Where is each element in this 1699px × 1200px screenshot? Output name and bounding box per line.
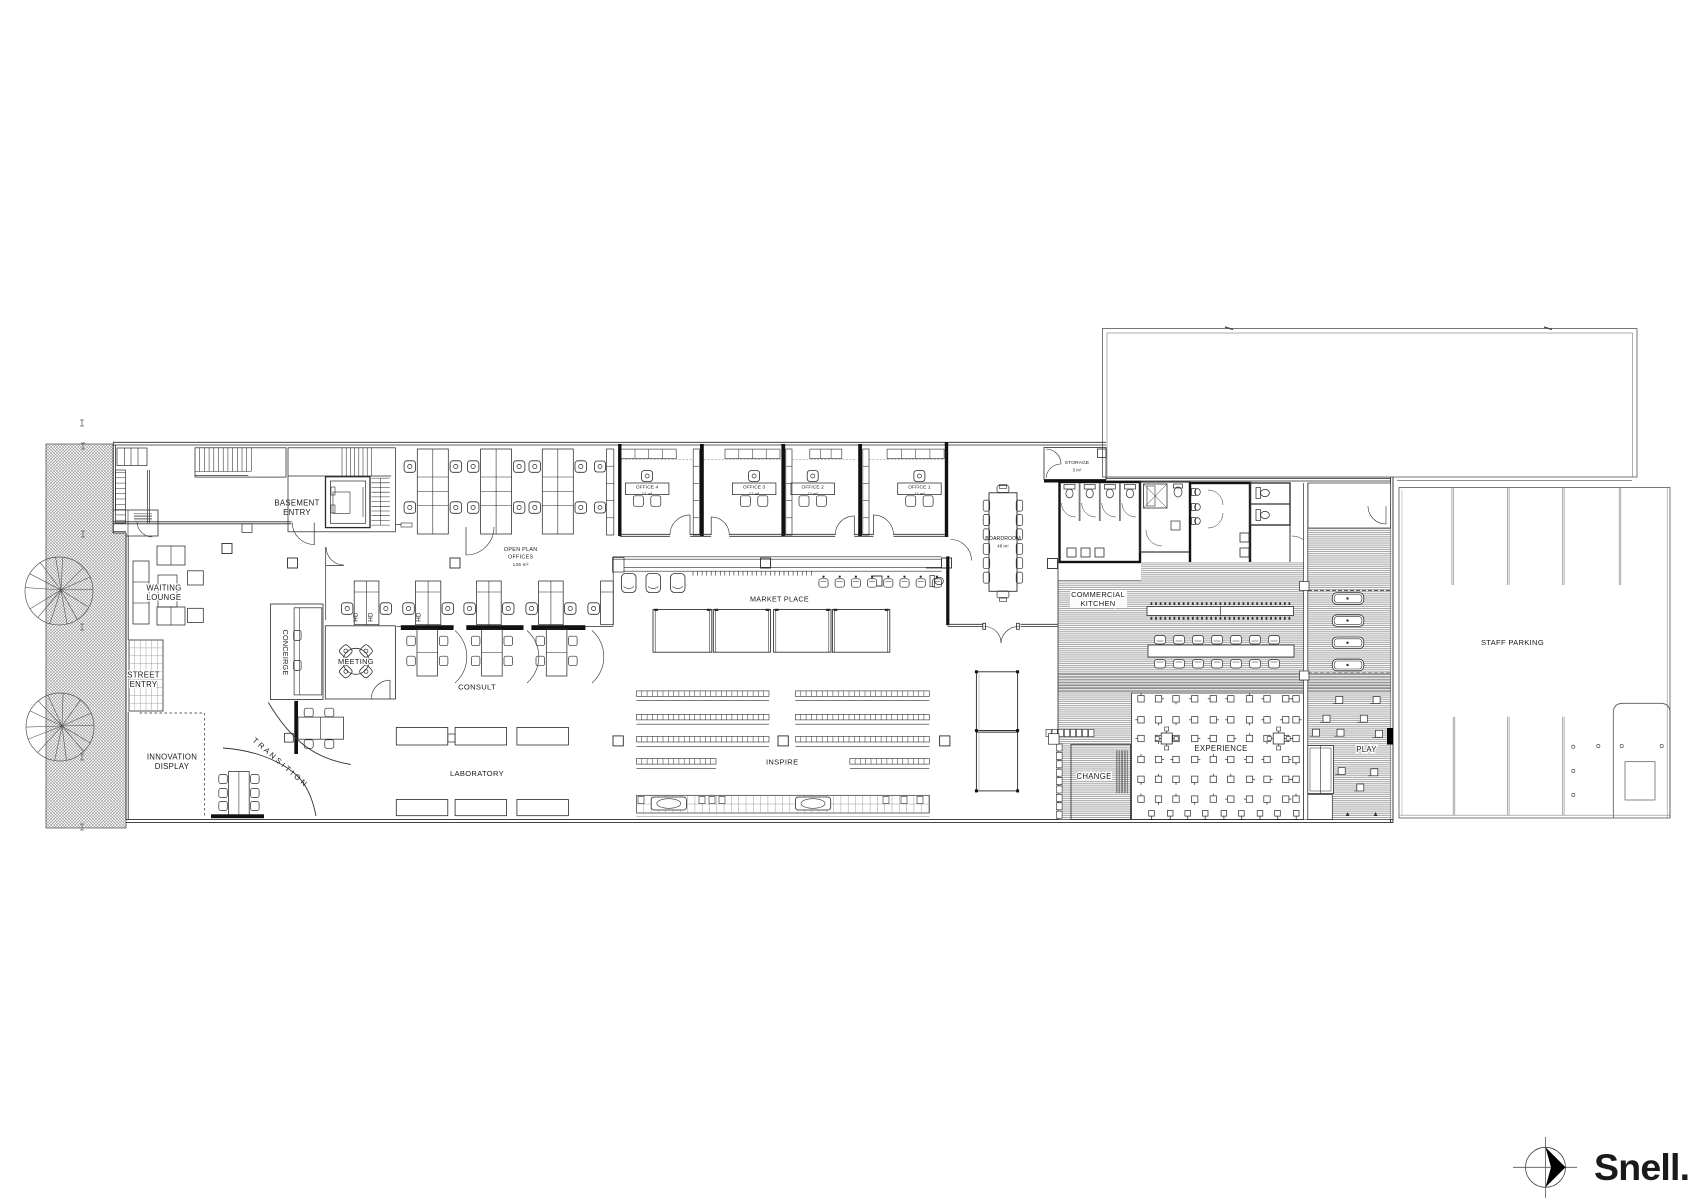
svg-text:DISPLAY: DISPLAY — [155, 762, 190, 771]
svg-text:BOARDROOM: BOARDROOM — [985, 536, 1021, 542]
svg-text:MEETING: MEETING — [338, 657, 374, 666]
svg-text:LOUNGE: LOUNGE — [147, 593, 182, 602]
svg-text:STORAGE: STORAGE — [1065, 460, 1090, 466]
svg-text:HD: HD — [416, 612, 423, 622]
svg-text:INNOVATION: INNOVATION — [147, 753, 197, 762]
svg-text:BASEMENT: BASEMENT — [274, 499, 319, 508]
svg-text:48 m²: 48 m² — [997, 544, 1009, 549]
svg-text:HD: HD — [368, 612, 375, 622]
svg-text:Snell.: Snell. — [1594, 1146, 1689, 1188]
svg-text:HD: HD — [353, 612, 360, 622]
svg-text:17 m²: 17 m² — [807, 491, 818, 496]
svg-text:STAFF PARKING: STAFF PARKING — [1481, 638, 1544, 647]
svg-text:OFFICE 4: OFFICE 4 — [636, 485, 659, 491]
svg-text:ENTRY: ENTRY — [283, 508, 311, 517]
svg-text:135 m²: 135 m² — [513, 562, 529, 567]
svg-text:KITCHEN: KITCHEN — [1080, 599, 1115, 608]
svg-text:OFFICES: OFFICES — [508, 555, 534, 561]
svg-text:ENTRY: ENTRY — [130, 680, 158, 689]
svg-text:WAITING: WAITING — [146, 584, 181, 593]
svg-text:OFFICE 3: OFFICE 3 — [743, 485, 766, 491]
svg-text:LABORATORY: LABORATORY — [450, 769, 504, 778]
svg-text:CONSULT: CONSULT — [458, 683, 496, 692]
svg-text:STREET: STREET — [127, 671, 160, 680]
svg-text:MARKET PLACE: MARKET PLACE — [750, 595, 809, 604]
svg-text:OFFICE 2: OFFICE 2 — [802, 485, 825, 491]
svg-text:CHANGE: CHANGE — [1076, 772, 1111, 781]
svg-text:CONCEIRGE: CONCEIRGE — [281, 630, 290, 676]
svg-text:17 m²: 17 m² — [749, 491, 760, 496]
svg-text:EXPERIENCE: EXPERIENCE — [1194, 744, 1247, 753]
svg-text:PLAY: PLAY — [1356, 745, 1377, 754]
svg-text:17 m²: 17 m² — [642, 491, 653, 496]
svg-text:INSPIRE: INSPIRE — [766, 758, 798, 767]
svg-text:OPEN PLAN: OPEN PLAN — [504, 547, 538, 553]
svg-text:3 m²: 3 m² — [1073, 468, 1082, 473]
svg-text:COMMERCIAL: COMMERCIAL — [1071, 590, 1125, 599]
svg-text:OFFICE 1: OFFICE 1 — [908, 485, 931, 491]
svg-text:17 m²: 17 m² — [914, 491, 925, 496]
